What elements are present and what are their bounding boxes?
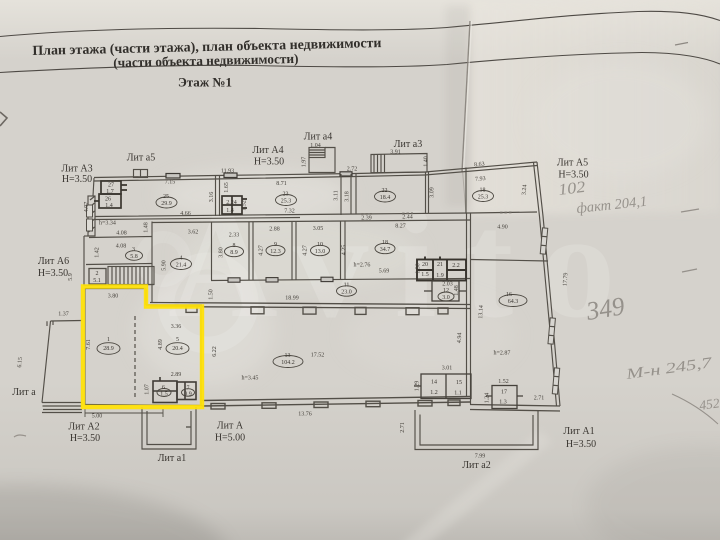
- svg-text:3.09: 3.09: [430, 187, 436, 198]
- svg-text:1.2: 1.2: [430, 390, 438, 396]
- svg-text:H=3.50: H=3.50: [62, 174, 92, 185]
- svg-text:5.8: 5.8: [130, 254, 138, 260]
- svg-text:H=3.50: H=3.50: [566, 439, 596, 450]
- svg-text:2.39: 2.39: [361, 216, 372, 222]
- svg-text:2.71: 2.71: [400, 422, 406, 433]
- svg-text:1.4: 1.4: [226, 208, 234, 214]
- svg-text:13.76: 13.76: [298, 412, 312, 418]
- svg-text:h=3.45: h=3.45: [242, 376, 259, 382]
- svg-text:2.03: 2.03: [442, 282, 453, 288]
- svg-text:Лит а: Лит а: [12, 387, 36, 398]
- svg-text:5.1: 5.1: [93, 278, 101, 284]
- svg-text:3.01: 3.01: [442, 366, 453, 372]
- svg-text:18: 18: [382, 240, 388, 246]
- svg-text:34.7: 34.7: [380, 247, 391, 253]
- svg-text:Лит а1: Лит а1: [158, 453, 186, 464]
- svg-text:6: 6: [162, 385, 165, 391]
- svg-text:Лит А3: Лит А3: [61, 164, 92, 175]
- svg-text:21.4: 21.4: [176, 263, 187, 269]
- svg-text:23: 23: [283, 192, 289, 198]
- svg-text:3.05: 3.05: [313, 226, 324, 232]
- svg-text:4.90: 4.90: [497, 225, 508, 231]
- svg-text:2.24: 2.24: [226, 200, 237, 206]
- svg-text:349: 349: [583, 291, 626, 326]
- svg-text:1.4: 1.4: [105, 203, 113, 209]
- svg-text:8.9: 8.9: [230, 250, 238, 256]
- svg-text:0.9: 0.9: [184, 392, 192, 398]
- svg-text:7.15: 7.15: [165, 180, 176, 186]
- svg-text:8.71: 8.71: [276, 181, 287, 187]
- svg-text:4.08: 4.08: [116, 231, 127, 237]
- svg-text:7.32: 7.32: [284, 209, 295, 215]
- svg-text:Лит а3: Лит а3: [394, 139, 422, 150]
- svg-text:18.4: 18.4: [380, 195, 391, 201]
- svg-text:3.11: 3.11: [334, 190, 340, 200]
- svg-text:13.0: 13.0: [315, 249, 326, 255]
- svg-text:Лит А5: Лит А5: [557, 158, 588, 169]
- svg-text:3.80: 3.80: [219, 247, 225, 258]
- svg-text:9: 9: [274, 242, 277, 248]
- svg-text:13: 13: [285, 353, 291, 359]
- svg-text:25.3: 25.3: [478, 195, 489, 201]
- svg-text:25: 25: [163, 194, 169, 200]
- svg-text:1.1: 1.1: [454, 391, 462, 397]
- svg-text:1.42: 1.42: [95, 247, 101, 258]
- svg-text:13.14: 13.14: [478, 305, 485, 319]
- svg-text:12.3: 12.3: [270, 249, 281, 255]
- svg-text:5.00: 5.00: [92, 414, 103, 420]
- svg-text:1.24: 1.24: [485, 393, 491, 404]
- svg-text:2.88: 2.88: [269, 227, 280, 233]
- svg-text:1.07: 1.07: [145, 384, 151, 395]
- svg-text:8.27: 8.27: [395, 224, 406, 230]
- svg-text:22: 22: [382, 188, 388, 194]
- svg-text:1.50: 1.50: [209, 289, 215, 300]
- svg-text:102: 102: [557, 179, 586, 199]
- svg-text:16: 16: [506, 292, 512, 298]
- svg-text:27: 27: [108, 183, 114, 189]
- svg-text:10: 10: [317, 242, 323, 248]
- svg-text:h=2.87: h=2.87: [494, 351, 511, 357]
- svg-text:Этаж №1: Этаж №1: [178, 75, 232, 90]
- svg-text:4.25: 4.25: [342, 245, 348, 256]
- svg-text:3.18: 3.18: [345, 191, 351, 202]
- svg-text:1.52: 1.52: [242, 200, 248, 211]
- svg-text:Лит а2: Лит а2: [462, 460, 490, 471]
- svg-text:11: 11: [344, 283, 350, 289]
- svg-text:H=3.50: H=3.50: [38, 268, 68, 279]
- svg-text:15: 15: [456, 380, 462, 386]
- svg-text:7.99: 7.99: [475, 454, 486, 460]
- svg-text:2.71: 2.71: [534, 396, 545, 402]
- svg-text:Лит А2: Лит А2: [68, 422, 99, 433]
- svg-text:7.61: 7.61: [86, 339, 92, 350]
- svg-text:17: 17: [501, 390, 507, 396]
- svg-text:2.33: 2.33: [229, 233, 240, 239]
- svg-text:1.48: 1.48: [144, 222, 150, 233]
- svg-text:8: 8: [233, 243, 236, 249]
- svg-text:Лит а5: Лит а5: [127, 153, 155, 164]
- svg-text:17.52: 17.52: [311, 353, 325, 359]
- svg-text:1.5: 1.5: [160, 392, 168, 398]
- svg-text:3: 3: [132, 247, 135, 253]
- svg-text:18: 18: [480, 188, 486, 194]
- svg-text:Лит А4: Лит А4: [252, 145, 283, 156]
- svg-text:4.27: 4.27: [303, 245, 309, 256]
- svg-text:6.22: 6.22: [212, 346, 218, 357]
- svg-text:1.40: 1.40: [424, 156, 430, 167]
- svg-text:2.89: 2.89: [171, 372, 182, 378]
- svg-text:Лит а4: Лит а4: [304, 132, 332, 143]
- svg-text:1.04: 1.04: [310, 143, 321, 149]
- svg-text:4: 4: [180, 256, 183, 262]
- svg-text:4.89: 4.89: [158, 339, 164, 350]
- svg-text:20: 20: [422, 262, 428, 268]
- svg-text:1.7: 1.7: [106, 189, 114, 195]
- svg-text:21: 21: [437, 262, 443, 268]
- svg-text:3.36: 3.36: [171, 324, 182, 330]
- svg-text:1.3: 1.3: [499, 400, 507, 406]
- svg-text:Лит А6: Лит А6: [38, 256, 69, 267]
- svg-text:104.2: 104.2: [281, 360, 295, 366]
- svg-text:1.9: 1.9: [436, 273, 444, 279]
- svg-text:28.9: 28.9: [103, 346, 114, 352]
- svg-text:3.91: 3.91: [390, 150, 401, 156]
- svg-text:11.93: 11.93: [221, 169, 234, 175]
- svg-text:6.15: 6.15: [17, 357, 24, 368]
- svg-text:1.52: 1.52: [498, 379, 509, 385]
- svg-text:3.0: 3.0: [442, 295, 450, 301]
- svg-text:1.48: 1.48: [454, 285, 460, 296]
- svg-text:20.4: 20.4: [172, 346, 183, 352]
- svg-text:5.69: 5.69: [379, 269, 390, 275]
- svg-text:5.9: 5.9: [68, 273, 74, 281]
- svg-text:4.94: 4.94: [457, 333, 464, 344]
- svg-text:5.90: 5.90: [162, 260, 168, 271]
- svg-text:h=3.34: h=3.34: [99, 221, 116, 227]
- svg-text:2.44: 2.44: [402, 215, 413, 221]
- svg-text:3.16: 3.16: [209, 192, 215, 203]
- svg-text:5: 5: [176, 337, 179, 343]
- svg-text:1.29: 1.29: [415, 381, 421, 392]
- svg-text:25.3: 25.3: [281, 199, 292, 205]
- svg-text:26: 26: [105, 197, 111, 203]
- svg-text:4.66: 4.66: [180, 211, 191, 217]
- svg-text:23.0: 23.0: [341, 290, 352, 296]
- svg-text:H=3.50: H=3.50: [70, 433, 100, 444]
- svg-text:7.93: 7.93: [475, 176, 486, 183]
- svg-text:18.99: 18.99: [285, 296, 299, 302]
- svg-text:Лит А1: Лит А1: [563, 426, 594, 437]
- svg-text:17.79: 17.79: [563, 272, 570, 286]
- svg-text:2: 2: [96, 271, 99, 277]
- svg-text:1.97: 1.97: [302, 157, 308, 168]
- svg-text:H=5.00: H=5.00: [215, 433, 245, 444]
- svg-text:14: 14: [431, 380, 437, 386]
- svg-text:1.37: 1.37: [58, 312, 69, 318]
- svg-text:8.63: 8.63: [474, 162, 485, 169]
- svg-text:1: 1: [107, 337, 110, 343]
- svg-text:29.9: 29.9: [161, 201, 172, 207]
- svg-text:3.62: 3.62: [188, 230, 199, 236]
- svg-text:4.27: 4.27: [259, 245, 265, 256]
- svg-text:12: 12: [443, 288, 449, 294]
- svg-text:h=2.76: h=2.76: [354, 263, 371, 269]
- svg-text:Лит А: Лит А: [217, 421, 244, 432]
- svg-text:1.5: 1.5: [421, 272, 429, 278]
- svg-text:3.80: 3.80: [108, 294, 119, 300]
- svg-text:4.97: 4.97: [84, 202, 90, 213]
- svg-text:2.72: 2.72: [347, 167, 358, 173]
- svg-text:H=3.50: H=3.50: [254, 157, 284, 168]
- svg-text:64.3: 64.3: [508, 299, 519, 305]
- svg-text:3.24: 3.24: [522, 184, 529, 195]
- svg-text:1.30: 1.30: [416, 263, 422, 274]
- svg-text:2.2: 2.2: [452, 263, 460, 269]
- svg-text:4.08: 4.08: [116, 244, 127, 250]
- svg-text:1.65: 1.65: [224, 182, 230, 193]
